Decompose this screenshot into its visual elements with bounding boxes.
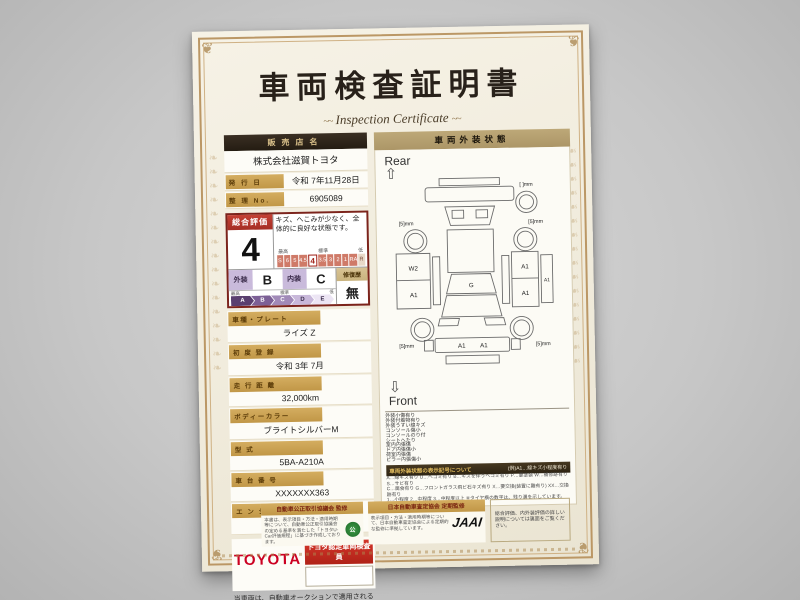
field-body-color: ボディーカラー ブライトシルバーM — [229, 405, 373, 440]
photo-desk: { "page": { "title": "車両検査証明書", "subtitl… — [0, 0, 800, 600]
page-title: 車両検査証明書 — [192, 56, 590, 109]
subtitle-text: Inspection Certificate — [335, 110, 448, 127]
repair-history-value: 無 — [337, 281, 368, 305]
repair-history-label: 修復歴 — [336, 268, 367, 282]
field-value: 32,000km — [230, 389, 371, 404]
symbols-example: (例)A1…線キズ小程度有り — [508, 464, 568, 472]
overall-rating-box: 総合評価 4 キズ、へこみが少なく、全体的に良好な状態です。 最高 標準 低 S… — [225, 211, 370, 309]
mark-right-front-door: A1 — [522, 290, 530, 297]
number-scale: S 6 5 4.5 4 3.5 3 2 1 RA R — [276, 254, 365, 268]
condition-notes-list: 外装小傷有り 外装付着物有り 外装うすい線キズ コンソール傷小 コンソールのり付… — [385, 408, 570, 464]
letter-cell: D — [291, 295, 314, 305]
interior-grade-label: 内装 — [282, 269, 306, 289]
tilde-ornament: ~~ — [323, 116, 332, 127]
mark-left-front-door: A1 — [410, 292, 418, 299]
fair-trade-seal-icon: 公 — [345, 522, 360, 537]
ref-no-value: 6905089 — [284, 193, 368, 205]
field-value: 5BA-A210A — [231, 453, 372, 468]
overall-rating-label: 総合評価 — [227, 214, 272, 230]
tire-depth-rear-left: [5]mm — [399, 221, 414, 227]
field-model-plate: 車種・プレート ライズ Z — [227, 308, 371, 343]
dealer-value: 株式会社滋賀トヨタ — [224, 149, 367, 174]
tilde-ornament: ~~ — [452, 114, 461, 125]
certification-footer: 自動車公正取引協議会 監修 本書は、表示項目・方法・適用時期等について、自動車公… — [261, 498, 571, 547]
letter-scale: A B C D E — [231, 294, 334, 306]
symbols-title: 車両外装状態の表示記号について — [389, 465, 471, 475]
fair-trade-text: 本書は、表示項目・方法・適用時期等について、自動車公正取引協議会の定める基準を満… — [264, 516, 342, 545]
scale-cell-highlighted: 4 — [308, 254, 318, 266]
back-page-note: 総合評価、内外装評価の詳しい説明については裏面をご覧ください。 — [495, 510, 566, 529]
front-direction: ⇩ Front — [389, 377, 569, 407]
flourish-icon: ❦ — [577, 538, 590, 556]
ref-no-row: 整 理 No. 6905089 — [225, 190, 368, 210]
issue-date-row: 発 行 日 令和 7年11月28日 — [225, 172, 368, 192]
jaai-box: 日本自動車査定協会 定期監修 表示項目・方法・適用時期等について、日本自動車査定… — [367, 499, 485, 544]
fair-trade-council-box: 自動車公正取引協議会 監修 本書は、表示項目・方法・適用時期等について、自動車公… — [261, 502, 363, 547]
field-mileage: 走 行 距 離 32,000km — [228, 374, 372, 407]
scale-cell: 6 — [284, 255, 291, 267]
field-value: ライズ Z — [229, 324, 370, 341]
jaai-logo: JAAI — [451, 514, 482, 530]
page-subtitle: ~~ Inspection Certificate ~~ — [193, 107, 590, 131]
exterior-grade-label: 外装 — [228, 270, 252, 290]
vehicle-info-column: 販売店名 株式会社滋賀トヨタ 発 行 日 令和 7年11月28日 整 理 No.… — [224, 133, 374, 512]
certificate-paper: ❦ ❦ ❦ ❦ ❧ ❧ ❧ ❧ ❧ ❧ ❧ ❧ ❧ ❧ ❧ ❧ ❧ ❧ ❧ ❧ … — [192, 24, 599, 572]
mark-bumper-left: A1 — [458, 343, 466, 350]
tire-depth-spare: [ ]mm — [519, 182, 533, 188]
car-condition-diagram: [ ]mm [5]mm [5]mm [5]mm [5]mm W2 A1 A1 A… — [381, 173, 569, 380]
scale-cell: R — [358, 254, 365, 266]
exterior-condition-panel: Rear ⇧ — [374, 147, 577, 509]
edge-flourish-icon: ❧ ❧ ❧ ❧ ❧ ❧ ❧ ❧ ❧ ❧ ❧ ❧ ❧ ❧ ❧ ❧ — [207, 151, 225, 471]
scale-cell: RA — [350, 254, 358, 266]
tire-depth-front-left: [5]mm — [399, 344, 414, 350]
scale-cell: 3 — [327, 254, 334, 266]
field-model-code: 型 式 5BA-A210A — [230, 438, 374, 471]
inspector-signature-box — [305, 565, 373, 586]
field-chassis-no: 車 台 番 号 XXXXXXX363 — [230, 469, 374, 502]
interior-grade-value: C — [306, 268, 336, 289]
back-page-note-box: 総合評価、内外装評価の詳しい説明については裏面をご覧ください。 — [490, 498, 571, 543]
mark-left-rear-door: W2 — [409, 265, 419, 272]
overall-rating-value: 4 — [228, 229, 274, 269]
tire-depth-front-right: [5]mm — [536, 341, 551, 347]
inspection-statement: 当車両は、自動車オークションで適用される車両評価基準に沿い、トヨタユーゼックが認… — [233, 592, 377, 600]
mark-windshield: G — [469, 282, 474, 289]
exterior-condition-column: 車両外装状態 Rear ⇧ — [374, 129, 577, 509]
mark-right-rear-door: A1 — [521, 263, 529, 270]
front-label: Front — [389, 394, 417, 409]
letter-cell: B — [251, 295, 274, 305]
field-value: XXXXXXX363 — [232, 484, 373, 499]
field-value: ブライトシルバーM — [230, 420, 371, 437]
field-first-registration: 初 度 登 録 令和 3年 7月 — [228, 341, 372, 376]
letter-cell: E — [311, 294, 334, 304]
jaai-text: 表示項目・方法・適用時期等について、日本自動車査定協会による定期的な監修に準拠し… — [371, 514, 450, 532]
mark-right-panel: A1 — [544, 277, 550, 283]
mark-bumper-right: A1 — [480, 342, 488, 349]
letter-cell: C — [271, 295, 294, 305]
flourish-icon: ❦ — [567, 32, 580, 50]
certificate-body: 販売店名 株式会社滋賀トヨタ 発 行 日 令和 7年11月28日 整 理 No.… — [224, 129, 577, 512]
ref-no-label: 整 理 No. — [226, 192, 284, 207]
issue-date-value: 令和 7年11月28日 — [284, 174, 368, 188]
rating-description: キズ、へこみが少なく、全体的に良好な状態です。 — [275, 215, 365, 249]
tire-depth-rear-right: [5]mm — [528, 219, 543, 225]
scale-cell: 1 — [342, 254, 349, 266]
scale-cell: S — [277, 255, 284, 267]
front-arrow-icon: ⇩ — [389, 377, 569, 395]
issue-date-label: 発 行 日 — [226, 174, 284, 189]
field-value: 令和 3年 7月 — [229, 356, 370, 373]
letter-cell: A — [231, 296, 254, 306]
scale-cell: 3.5 — [318, 254, 326, 266]
scale-cell: 4.5 — [299, 255, 307, 267]
exterior-grade-value: B — [252, 269, 282, 290]
scale-cell: 2 — [335, 254, 342, 266]
flourish-icon: ❦ — [201, 39, 214, 57]
scale-cell: 5 — [292, 255, 299, 267]
